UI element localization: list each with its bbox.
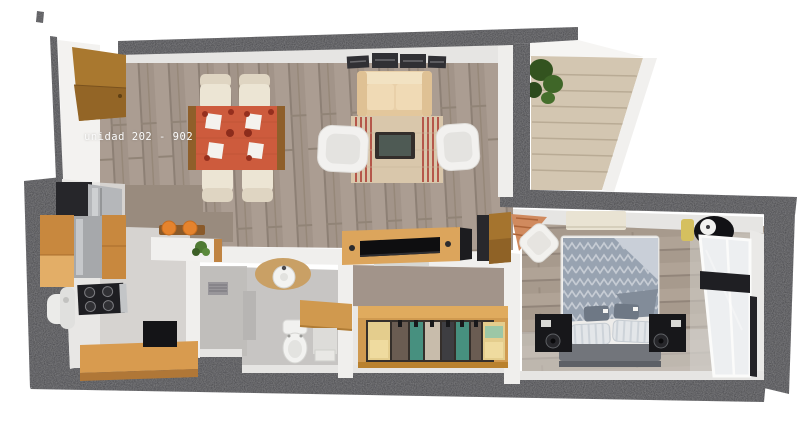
dining-table: [188, 106, 285, 170]
orange-fruit: [183, 221, 197, 235]
orange-fruit: [162, 221, 176, 235]
hanging-clothes: [392, 322, 408, 360]
interior-door: [489, 212, 511, 264]
tv-console: [342, 227, 472, 265]
black-upper-cabinet: [56, 182, 92, 218]
apartment-floorplan: [0, 0, 800, 435]
kitchen-cabinets: [40, 215, 126, 287]
yellow-bag: [681, 219, 694, 241]
shower-vent: [208, 282, 228, 295]
nightstand-speaker: [649, 314, 686, 352]
bench: [566, 211, 626, 230]
shower-partition: [243, 291, 256, 340]
wall-stub: [36, 11, 44, 23]
floorplan-render: unidad 202 - 902: [0, 0, 800, 435]
bathroom-sink: [255, 258, 311, 290]
shower-area: [197, 266, 247, 356]
stair-wall-face: [498, 45, 513, 197]
dining-chair: [202, 166, 233, 202]
dining-chair: [239, 74, 270, 110]
headboard: [559, 344, 661, 361]
wardrobe: [358, 306, 508, 368]
door-knob: [118, 94, 122, 98]
hanging-clothes: [456, 322, 469, 360]
sofa: [357, 71, 432, 117]
walk-in-closet: [358, 306, 508, 368]
entry-door-lower: [74, 85, 126, 121]
stair-landing: [530, 40, 644, 57]
unit-label: unidad 202 - 902: [84, 131, 193, 143]
entry: [72, 47, 126, 121]
coffee-table: [375, 132, 415, 159]
hanging-clothes: [410, 322, 423, 360]
dining-chair: [242, 166, 273, 202]
hanging-clothes: [425, 322, 440, 360]
armchair: [435, 123, 480, 172]
dining-chair: [200, 74, 231, 110]
doorway-shadow: [477, 215, 490, 261]
closet-back-wall: [352, 264, 506, 310]
hanging-clothes: [471, 322, 481, 360]
armchair: [317, 125, 369, 174]
bed: [559, 236, 661, 367]
oven: [143, 321, 177, 347]
stove: [77, 283, 128, 316]
speaker-knob: [445, 241, 451, 247]
speaker-knob: [349, 245, 355, 251]
stair-left-wall: [513, 43, 530, 197]
kitchen-counter: [80, 341, 198, 381]
right-wall: [764, 210, 795, 394]
nightstand-speaker: [535, 314, 572, 352]
hanging-clothes: [442, 322, 454, 360]
stair-hall: [526, 40, 657, 192]
